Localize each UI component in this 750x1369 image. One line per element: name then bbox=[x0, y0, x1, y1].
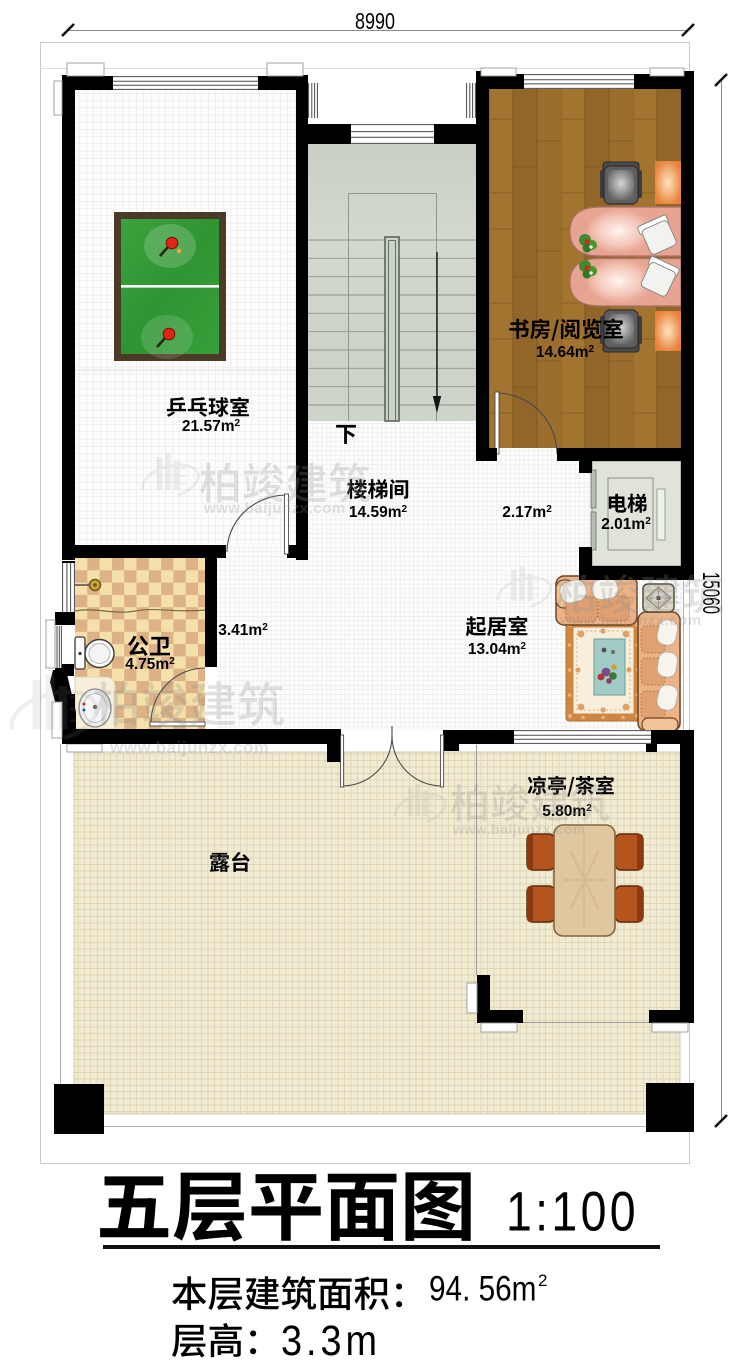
svg-text:2.17m2: 2.17m2 bbox=[502, 504, 552, 521]
svg-text:13.04m2: 13.04m2 bbox=[468, 641, 527, 658]
svg-text:3.3m: 3.3m bbox=[281, 1316, 381, 1365]
svg-text:2.01m2: 2.01m2 bbox=[601, 516, 651, 533]
svg-text:8990: 8990 bbox=[355, 9, 395, 35]
svg-text:4.75m2: 4.75m2 bbox=[125, 656, 175, 673]
svg-text:3.41m2: 3.41m2 bbox=[218, 622, 268, 639]
svg-text:www.baijunzx.com: www.baijunzx.com bbox=[452, 821, 586, 837]
svg-text:1:100: 1:100 bbox=[506, 1179, 639, 1242]
svg-text:www.baijunzx.com: www.baijunzx.com bbox=[203, 500, 346, 517]
svg-text:2: 2 bbox=[538, 1271, 547, 1290]
svg-text:www.baijunzx.com: www.baijunzx.com bbox=[109, 738, 269, 757]
svg-text:21.57m2: 21.57m2 bbox=[182, 418, 241, 435]
svg-text:94. 56m: 94. 56m bbox=[429, 1269, 536, 1308]
svg-text:www.baijunzx.com: www.baijunzx.com bbox=[559, 612, 702, 629]
svg-text:14.59m2: 14.59m2 bbox=[349, 504, 408, 521]
svg-text:14.64m2: 14.64m2 bbox=[536, 344, 595, 361]
